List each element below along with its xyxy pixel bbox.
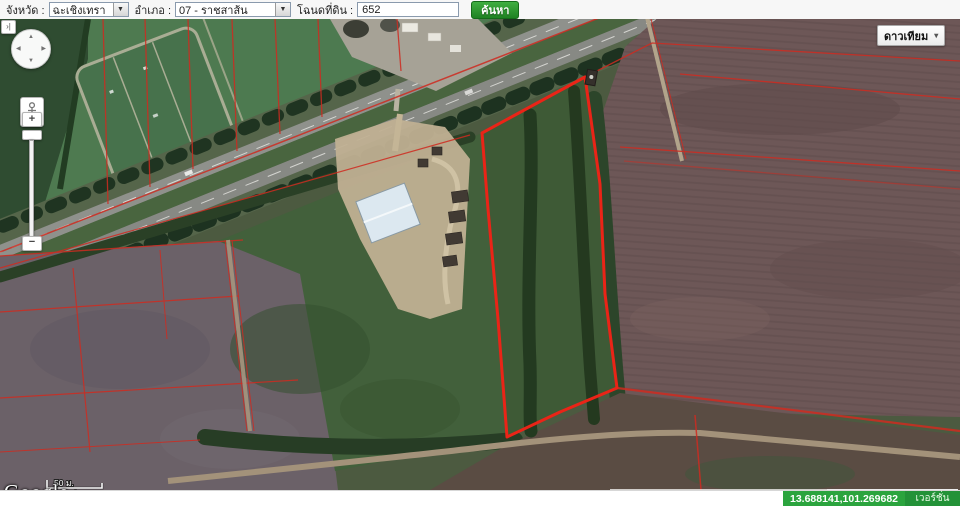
zoom-out-button[interactable]: − — [22, 236, 42, 251]
pan-down-icon[interactable]: ▼ — [28, 58, 34, 64]
district-label: อำเภอ : — [135, 1, 172, 19]
pan-up-icon[interactable]: ▲ — [28, 34, 34, 40]
map-imagery — [0, 19, 960, 490]
landsmaps-app: จังหวัด : ฉะเชิงเทรา ▼ อำเภอ : 07 - ราชส… — [0, 0, 960, 506]
pan-right-icon[interactable]: ▶ — [41, 46, 46, 52]
zoom-in-button[interactable]: + — [22, 112, 42, 127]
google-logo: Google — [4, 480, 69, 490]
satellite-map[interactable]: 50 ม. 200 ฟุต Google ภาพ ©2013 DigitalGl… — [0, 19, 960, 490]
district-select[interactable]: 07 - ราชสาส้น ▼ — [175, 2, 291, 17]
sidebar-toggle-button[interactable]: ›| — [1, 20, 16, 34]
map-type-button[interactable]: ดาวเทียม ▾ — [877, 25, 945, 46]
chevron-down-icon[interactable]: ▼ — [113, 3, 128, 16]
version-label: เวอร์ชั่น ๓.๐๑ — [905, 491, 960, 506]
pan-control[interactable]: ▲ ▼ ◀ ▶ — [11, 29, 51, 69]
deed-number-label: โฉนดที่ดิน : — [297, 1, 353, 19]
search-button[interactable]: ค้นหา — [471, 1, 519, 19]
province-label: จังหวัด : — [6, 1, 45, 19]
plowed-fields-right — [597, 19, 960, 417]
zoom-slider-handle[interactable] — [22, 130, 42, 140]
coordinates-readout: 13.688141,101.269682 — [783, 491, 905, 506]
status-bar: 13.688141,101.269682 เวอร์ชั่น ๓.๐๑ — [0, 490, 960, 506]
search-toolbar: จังหวัด : ฉะเชิงเทรา ▼ อำเภอ : 07 - ราชส… — [0, 0, 960, 20]
zoom-slider-track[interactable] — [29, 140, 34, 237]
geo-panel: 13.688141,101.269682 เวอร์ชั่น ๓.๐๑ — [783, 491, 960, 506]
pan-left-icon[interactable]: ◀ — [16, 46, 21, 52]
corner-structure-marker — [585, 69, 597, 86]
deed-number-input[interactable]: 652 — [357, 2, 459, 17]
chevron-down-icon[interactable]: ▼ — [275, 3, 290, 16]
province-select[interactable]: ฉะเชิงเทรา ▼ — [49, 2, 129, 17]
chevron-down-icon: ▾ — [934, 31, 938, 40]
